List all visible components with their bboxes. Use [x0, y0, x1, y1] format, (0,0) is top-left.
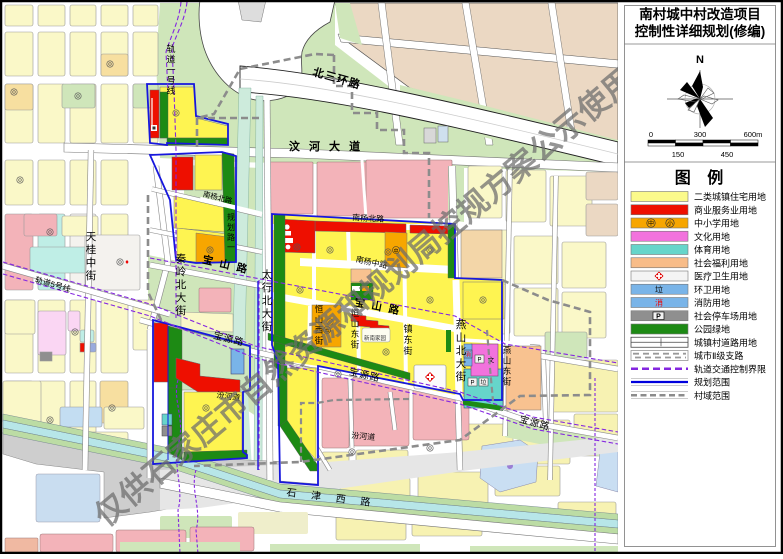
- svg-text:规: 规: [227, 212, 235, 222]
- svg-text:控制性详细规划(修编): 控制性详细规划(修编): [635, 23, 766, 39]
- svg-text:汶 河 大 道: 汶 河 大 道: [289, 139, 363, 153]
- svg-text:燕: 燕: [456, 319, 467, 331]
- svg-text:东: 东: [403, 334, 412, 345]
- svg-text:文化用地: 文化用地: [694, 231, 730, 242]
- svg-text:商业服务业用地: 商业服务业用地: [694, 204, 757, 215]
- svg-text:城镇村道路用地: 城镇村道路用地: [694, 337, 757, 348]
- svg-text:垃: 垃: [480, 379, 486, 387]
- svg-text:一: 一: [227, 243, 235, 252]
- svg-text:行: 行: [262, 281, 273, 294]
- svg-text:燕: 燕: [503, 345, 512, 355]
- svg-text:小: 小: [667, 220, 673, 228]
- svg-text:南杨北路: 南杨北路: [352, 212, 384, 224]
- svg-text:N: N: [696, 54, 704, 66]
- svg-text:中: 中: [648, 220, 654, 228]
- svg-text:P: P: [477, 358, 481, 364]
- svg-text:街: 街: [176, 304, 187, 317]
- svg-text:600m: 600m: [744, 130, 763, 139]
- svg-text:街: 街: [351, 340, 360, 350]
- svg-text:150: 150: [672, 150, 685, 159]
- svg-text:消: 消: [655, 298, 663, 308]
- svg-text:北: 北: [176, 279, 187, 291]
- svg-text:南村城中村改造项目: 南村城中村改造项目: [639, 6, 761, 22]
- svg-text:♦: ♦: [125, 259, 129, 266]
- svg-text:规划范围: 规划范围: [694, 377, 730, 388]
- svg-text:社会福利用地: 社会福利用地: [694, 257, 748, 268]
- svg-text:300: 300: [694, 130, 707, 139]
- svg-text:公园绿地: 公园绿地: [694, 324, 730, 335]
- svg-text:街: 街: [86, 269, 97, 282]
- svg-text:大: 大: [262, 307, 273, 320]
- svg-text:北: 北: [456, 345, 467, 357]
- svg-text:镇: 镇: [403, 323, 412, 334]
- svg-text:汾河道: 汾河道: [351, 430, 376, 442]
- svg-text:街: 街: [262, 320, 273, 333]
- svg-text:东: 东: [503, 366, 512, 376]
- svg-text:图 例: 图 例: [675, 168, 729, 187]
- svg-text:桂: 桂: [86, 243, 97, 256]
- svg-text:新南家园: 新南家园: [364, 334, 387, 342]
- svg-text:轨道交通控制界限: 轨道交通控制界限: [694, 363, 766, 374]
- svg-text:大: 大: [176, 291, 187, 304]
- svg-text:岭: 岭: [176, 265, 187, 278]
- svg-text:街: 街: [403, 345, 412, 356]
- svg-text:线: 线: [166, 85, 175, 96]
- svg-text:450: 450: [721, 150, 734, 159]
- svg-text:二类城镇住宅用地: 二类城镇住宅用地: [694, 191, 766, 202]
- svg-text:社会停车场用地: 社会停车场用地: [694, 310, 757, 321]
- svg-text:划: 划: [227, 222, 235, 232]
- svg-text:一: 一: [166, 65, 175, 75]
- svg-text:山: 山: [456, 332, 467, 344]
- svg-text:北: 北: [262, 295, 273, 307]
- svg-text:环卫用地: 环卫用地: [694, 284, 730, 295]
- svg-text:体育用地: 体育用地: [694, 244, 730, 255]
- svg-text:中: 中: [86, 256, 97, 269]
- svg-text:道: 道: [166, 54, 175, 65]
- svg-text:P: P: [656, 314, 661, 321]
- svg-text:大: 大: [456, 357, 467, 370]
- svg-text:街: 街: [456, 370, 467, 383]
- svg-text:街: 街: [503, 377, 512, 387]
- svg-text:路: 路: [227, 232, 235, 242]
- svg-text:山: 山: [503, 356, 512, 366]
- svg-text:秦: 秦: [176, 252, 187, 265]
- svg-text:太: 太: [262, 268, 273, 281]
- svg-text:天: 天: [86, 231, 97, 243]
- svg-text:村域范围: 村域范围: [694, 390, 730, 401]
- svg-text:号: 号: [166, 76, 175, 86]
- svg-text:垃: 垃: [655, 284, 663, 294]
- svg-text:0: 0: [649, 130, 653, 139]
- svg-text:消防用地: 消防用地: [694, 297, 730, 308]
- svg-text:医疗卫生用地: 医疗卫生用地: [694, 271, 748, 282]
- svg-text:轨: 轨: [166, 43, 175, 54]
- svg-text:城市Ⅱ级支路: 城市Ⅱ级支路: [694, 350, 743, 361]
- svg-text:中小学用地: 中小学用地: [694, 218, 739, 229]
- svg-text:P: P: [470, 381, 474, 387]
